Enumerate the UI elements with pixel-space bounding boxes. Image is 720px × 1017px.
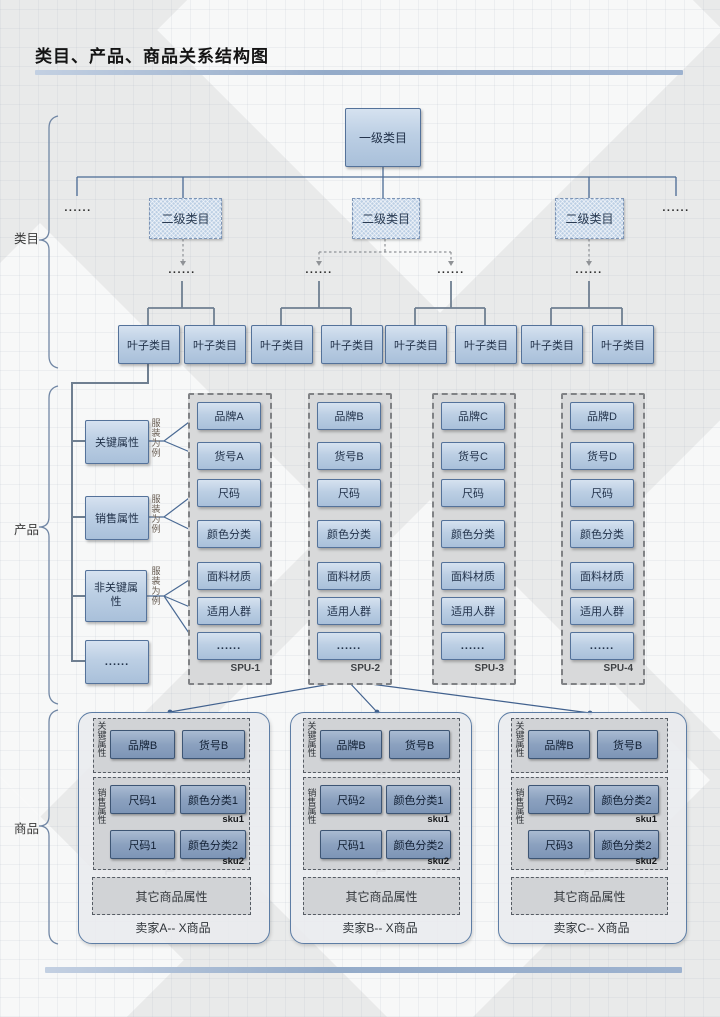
spu-label: SPU-2 [308,663,380,674]
sku-color: 颜色分类1 [180,785,246,814]
spu-item: 面料材质 [570,562,634,590]
sales-attr-vertical-label: 销售属性 [514,788,523,848]
example-note: 服装为例 [150,418,159,476]
leaf-category-node: 叶子类目 [118,325,180,364]
spu-item: 颜色分类 [441,520,505,548]
leaf-category-node: 叶子类目 [455,325,517,364]
ellipsis-subcategories: ...... [567,264,611,276]
seller-item-no: 货号B [597,730,658,759]
other-attrs-label: 其它商品属性 [135,888,207,905]
ellipsis-more-categories: ...... [654,202,698,214]
sku-size: 尺码2 [528,785,590,814]
seller-brand: 品牌B [528,730,590,759]
seller-item-no: 货号B [182,730,245,759]
seller-name: 卖家C-- X商品 [498,919,685,936]
sku-size: 尺码1 [110,785,175,814]
attr-node-key: 关键属性 [85,420,149,464]
sku-color: 颜色分类1 [386,785,451,814]
diagram-canvas: 类目、产品、商品关系结构图 类目 产品 商品 一级类目 二级类目 二级类目 二级… [0,0,720,1017]
leaf-category-node: 叶子类目 [321,325,383,364]
key-attr-vertical-label: 关键属性 [306,721,315,769]
other-attrs-box: 其它商品属性 [303,877,460,915]
key-attr-vertical-label: 关键属性 [96,721,105,769]
attr-node-more: ...... [85,640,149,684]
sku-label: sku1 [583,814,657,825]
sku-size: 尺码1 [110,830,175,859]
level2-category-node: 二级类目 [149,198,222,239]
spu-item: 适用人群 [317,597,381,625]
sku-label: sku2 [375,856,449,867]
leaf-category-node: 叶子类目 [385,325,447,364]
spu-item: 尺码 [441,479,505,507]
spu-item: 适用人群 [197,597,261,625]
seller-item-no: 货号B [389,730,450,759]
sku-color: 颜色分类2 [594,830,659,859]
sku-size: 尺码1 [320,830,382,859]
example-note: 服装为例 [150,494,159,552]
spu-label: SPU-3 [432,663,504,674]
leaf-category-node: 叶子类目 [592,325,654,364]
sales-attr-vertical-label: 销售属性 [306,788,315,848]
attr-node-nonkey: 非关键属性 [85,570,147,622]
ellipsis-subcategories: ...... [160,264,204,276]
other-attrs-label: 其它商品属性 [345,888,417,905]
level2-category-node: 二级类目 [352,198,420,239]
level2-category-node: 二级类目 [555,198,624,239]
leaf-category-node: 叶子类目 [251,325,313,364]
sku-size: 尺码2 [320,785,382,814]
spu-item: ...... [570,632,634,660]
sku-color: 颜色分类2 [594,785,659,814]
spu-item: 适用人群 [570,597,634,625]
sku-label: sku1 [375,814,449,825]
spu-item: 品牌C [441,402,505,430]
spu-item: 尺码 [197,479,261,507]
spu-item: 颜色分类 [570,520,634,548]
seller-brand: 品牌B [110,730,175,759]
key-attr-vertical-label: 关键属性 [514,721,523,769]
sales-attr-vertical-label: 销售属性 [96,788,105,848]
spu-item: 面料材质 [197,562,261,590]
spu-item: 尺码 [570,479,634,507]
example-note: 服装为例 [150,566,159,624]
spu-item: 货号A [197,442,261,470]
leaf-category-node: 叶子类目 [184,325,246,364]
spu-item: 面料材质 [317,562,381,590]
spu-item: ...... [197,632,261,660]
sku-label: sku1 [170,814,244,825]
spu-item: 颜色分类 [197,520,261,548]
sku-color: 颜色分类2 [386,830,451,859]
ellipsis-more-categories: ...... [56,202,100,214]
sku-size: 尺码3 [528,830,590,859]
other-attrs-label: 其它商品属性 [553,888,625,905]
spu-item: 品牌D [570,402,634,430]
footer-accent-bar [45,967,682,973]
spu-item: ...... [317,632,381,660]
spu-item: 面料材质 [441,562,505,590]
spu-item: 货号D [570,442,634,470]
spu-item: 尺码 [317,479,381,507]
spu-item: 颜色分类 [317,520,381,548]
section-label-goods: 商品 [14,818,39,837]
spu-item: ...... [441,632,505,660]
spu-item: 货号B [317,442,381,470]
seller-name: 卖家B-- X商品 [290,919,470,936]
spu-item: 品牌A [197,402,261,430]
sku-label: sku2 [170,856,244,867]
seller-brand: 品牌B [320,730,382,759]
spu-item: 品牌B [317,402,381,430]
root-category-node: 一级类目 [345,108,421,167]
section-label-category: 类目 [14,228,39,247]
other-attrs-box: 其它商品属性 [92,877,251,915]
sku-color: 颜色分类2 [180,830,246,859]
section-label-product: 产品 [14,519,39,538]
spu-label: SPU-1 [188,663,260,674]
other-attrs-box: 其它商品属性 [511,877,668,915]
leaf-category-node: 叶子类目 [521,325,583,364]
sku-label: sku2 [583,856,657,867]
spu-item: 适用人群 [441,597,505,625]
ellipsis-subcategories: ...... [429,264,473,276]
spu-label: SPU-4 [561,663,633,674]
attr-node-sales: 销售属性 [85,496,149,540]
ellipsis-subcategories: ...... [297,264,341,276]
seller-name: 卖家A-- X商品 [78,919,268,936]
spu-item: 货号C [441,442,505,470]
